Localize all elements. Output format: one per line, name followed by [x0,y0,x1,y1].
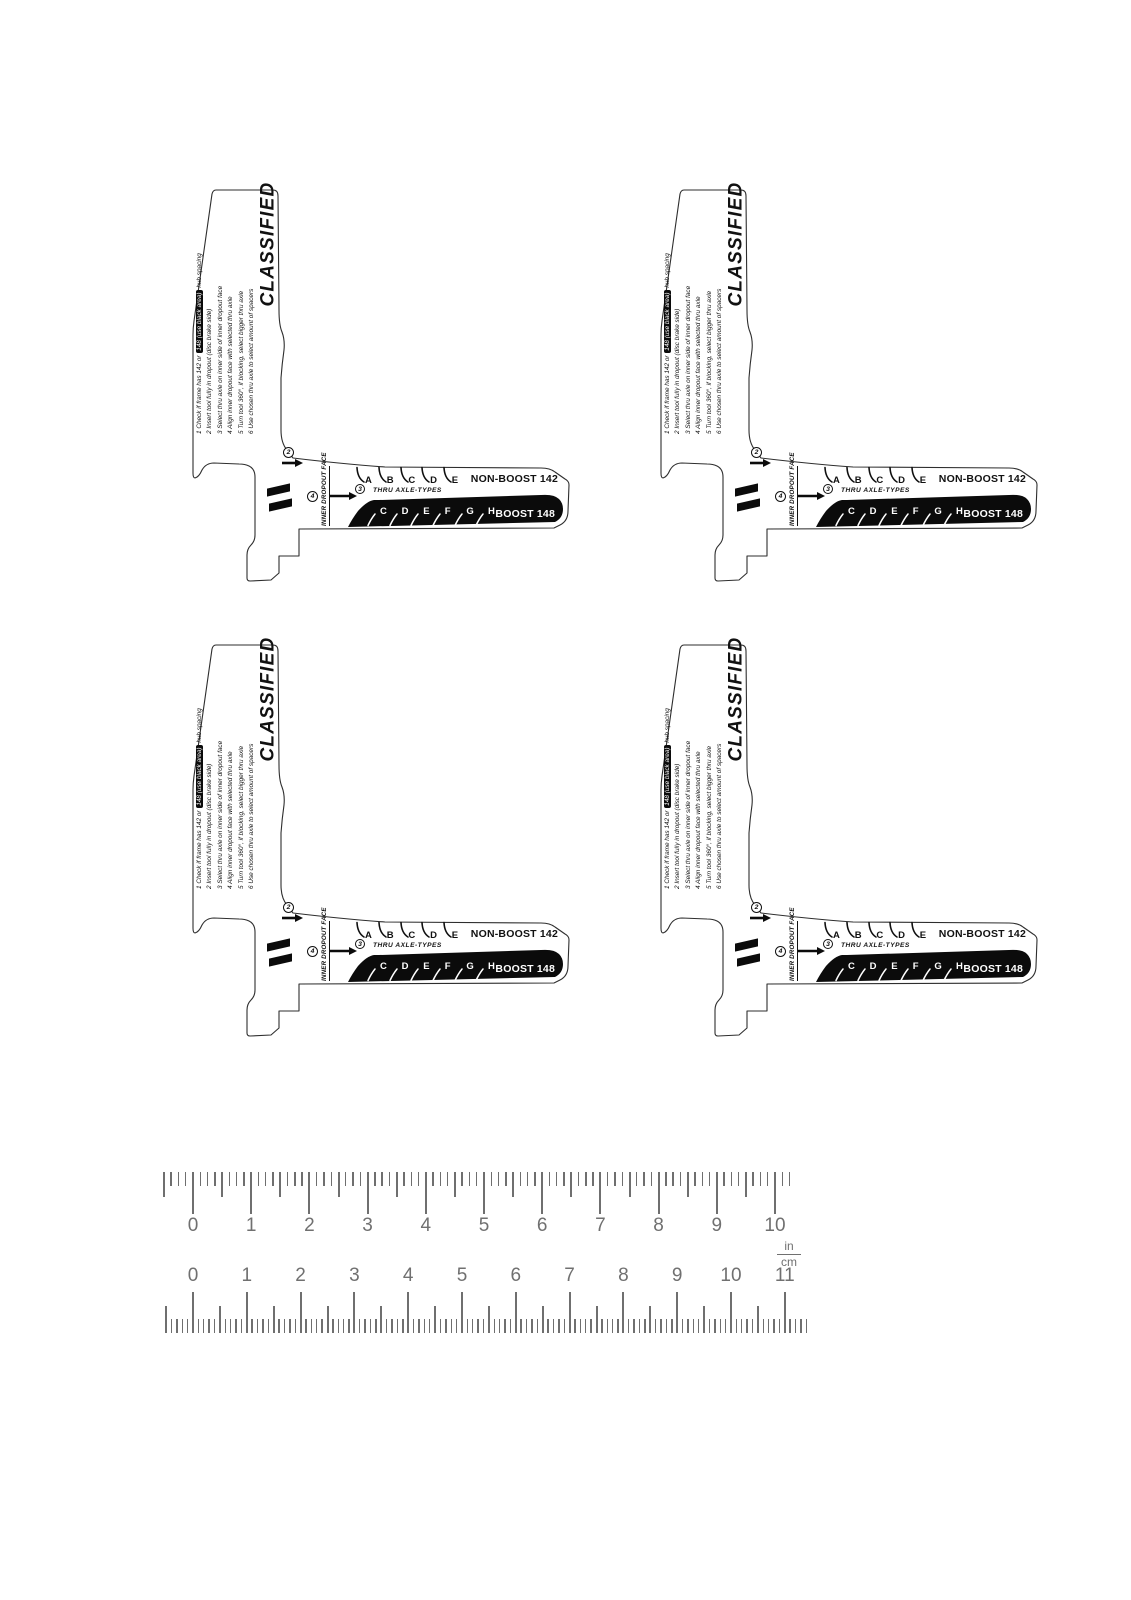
calibration-ruler: 012345678910 in cm 01234567891011 [140,1160,860,1340]
ruler-tick [235,1319,236,1333]
instruction-1-highlight: 148 (use black area) [664,745,671,807]
ruler-tick [289,1319,290,1333]
boost-label: BOOST 148 [902,963,1023,975]
dropout-gauge-tool: CLASSIFIED 1 Check if frame has 142 or 1… [183,637,577,1045]
axle-letter: C [848,962,855,972]
ruler-tick [375,1319,376,1333]
ruler-tick [682,1319,683,1333]
ruler-tick [709,1319,710,1333]
instruction-1-pre: 1 Check if frame has 142 or [664,809,671,889]
step-3-marker: 3 [355,939,365,949]
non-boost-label: NON-BOOST 142 [905,928,1026,940]
ruler-tick [622,1292,624,1333]
ruler-tick [203,1319,204,1333]
ruler-tick [311,1319,312,1333]
ruler-tick [219,1306,221,1333]
axle-letter: C [408,931,415,941]
instruction-line-3: 3 Select thru axle on inner side of inne… [216,717,226,889]
ruler-tick [456,1319,457,1333]
ruler-tick [327,1306,329,1333]
ruler-tick [714,1319,715,1333]
ruler-tick [176,1319,177,1333]
step-4-marker: 4 [775,946,786,957]
ruler-tick [370,1319,371,1333]
axle-letter: B [855,476,862,486]
ruler-tick [407,1292,409,1333]
thru-axle-types-label: THRU AXLE-TYPES [841,487,910,494]
axle-letter: D [870,962,877,972]
instruction-line-1: 1 Check if frame has 142 or 148 (use bla… [663,717,673,889]
ruler-tick [494,1319,495,1333]
axle-letter: E [891,507,897,517]
instruction-line-3: 3 Select thru axle on inner side of inne… [216,262,226,434]
ruler-tick [773,1319,774,1333]
ruler-tick [461,1292,463,1333]
axle-letter: D [430,476,437,486]
ruler-tick [564,1319,565,1333]
ruler-tick [660,1319,661,1333]
ruler-tick [644,1319,645,1333]
ruler-tick [251,1319,252,1333]
brand-wordmark: CLASSIFIED [258,650,281,762]
ruler-tick [596,1306,598,1333]
step-3-marker: 3 [823,939,833,949]
non-boost-label: NON-BOOST 142 [437,928,558,940]
instruction-line-4: 4 Align inner dropout face with selected… [226,262,236,434]
ruler-tick [757,1306,759,1333]
ruler-tick [402,1319,403,1333]
ruler-tick [746,1319,747,1333]
boost-label: BOOST 148 [434,508,555,520]
ruler-tick [278,1319,279,1333]
ruler-tick [693,1319,694,1333]
ruler-tick [703,1306,705,1333]
ruler-tick [698,1319,699,1333]
ruler-tick [305,1319,306,1333]
ruler-tick [424,1319,425,1333]
ruler-tick [418,1319,419,1333]
ruler-tick [192,1292,194,1333]
ruler-tick [321,1319,322,1333]
non-boost-label: NON-BOOST 142 [437,473,558,485]
ruler-tick [741,1319,742,1333]
axle-letter: D [430,931,437,941]
instruction-line-3: 3 Select thru axle on inner side of inne… [684,262,694,434]
axle-letter: C [876,476,883,486]
ruler-tick [601,1319,602,1333]
ruler-tick [795,1319,796,1333]
instruction-line-6: 6 Use chosen thru axle to select amount … [715,717,725,889]
axle-letter: E [423,962,429,972]
ruler-tick [241,1319,242,1333]
tool-copy-1: CLASSIFIED 1 Check if frame has 142 or 1… [183,182,577,590]
ruler-tick [612,1319,613,1333]
non-boost-label: NON-BOOST 142 [905,473,1026,485]
ruler-tick [752,1319,753,1333]
ruler-tick [585,1319,586,1333]
ruler-tick [725,1319,726,1333]
ruler-tick [467,1319,468,1333]
instruction-line-2: 2 Insert tool fully in dropout (disc bra… [205,717,215,889]
ruler-tick [343,1319,344,1333]
ruler-tick [429,1319,430,1333]
ruler-tick [547,1319,548,1333]
ruler-tick [187,1319,188,1333]
ruler-tick [520,1319,521,1333]
ruler-tick [359,1319,360,1333]
axle-letter: C [380,962,387,972]
ruler-tick [165,1306,167,1333]
instruction-1-post: hub spacing [196,253,203,289]
inner-dropout-face-label: INNER DROPOUT FACE [320,921,330,981]
ruler-tick [720,1319,721,1333]
ruler-tick [607,1319,608,1333]
instruction-line-1: 1 Check if frame has 142 or 148 (use bla… [663,262,673,434]
ruler-tick [800,1319,801,1333]
ruler-tick [364,1319,365,1333]
axle-letter: B [387,476,394,486]
ruler-tick [574,1319,575,1333]
ruler-tick [300,1292,302,1333]
instruction-1-highlight: 148 (use black area) [196,745,203,807]
inner-dropout-face-label: INNER DROPOUT FACE [788,466,798,526]
inner-dropout-face-label: INNER DROPOUT FACE [320,466,330,526]
boost-label: BOOST 148 [902,508,1023,520]
ruler-tick [316,1319,317,1333]
thru-axle-types-label: THRU AXLE-TYPES [373,942,442,949]
ruler-tick [451,1319,452,1333]
ruler-tick [198,1319,199,1333]
axle-letter: A [365,476,372,486]
axle-letter: D [402,962,409,972]
ruler-tick [617,1319,618,1333]
instruction-line-2: 2 Insert tool fully in dropout (disc bra… [205,262,215,434]
ruler-tick [353,1292,355,1333]
brand-wordmark: CLASSIFIED [258,195,281,307]
brand-wordmark: CLASSIFIED [726,195,749,307]
ruler-tick [348,1319,349,1333]
ruler-tick [225,1319,226,1333]
ruler-tick [515,1292,517,1333]
ruler-tick [806,1319,807,1333]
instruction-line-6: 6 Use chosen thru axle to select amount … [247,262,257,434]
step-4-marker: 4 [775,491,786,502]
instruction-1-post: hub spacing [664,708,671,744]
tool-copy-4: CLASSIFIED 1 Check if frame has 142 or 1… [651,637,1045,1045]
ruler-tick [569,1292,571,1333]
printable-template-page: CLASSIFIED 1 Check if frame has 142 or 1… [0,0,1131,1600]
ruler-tick [655,1319,656,1333]
ruler-tick [768,1319,769,1333]
step-2-marker: 2 [751,902,762,913]
ruler-tick [671,1319,672,1333]
instruction-line-1: 1 Check if frame has 142 or 148 (use bla… [195,717,205,889]
instruction-1-post: hub spacing [196,708,203,744]
axle-letter: A [833,931,840,941]
axle-letter: A [833,476,840,486]
inner-dropout-face-label: INNER DROPOUT FACE [788,921,798,981]
ruler-tick [284,1319,285,1333]
step-4-marker: 4 [307,491,318,502]
axle-letter: B [387,931,394,941]
instruction-1-highlight: 148 (use black area) [664,290,671,352]
instruction-line-2: 2 Insert tool fully in dropout (disc bra… [673,717,683,889]
axle-letter: E [423,507,429,517]
ruler-tick [639,1319,640,1333]
axle-letter: C [876,931,883,941]
ruler-tick [531,1319,532,1333]
ruler-tick [472,1319,473,1333]
ruler-tick [182,1319,183,1333]
axle-letter: C [848,507,855,517]
ruler-tick [553,1319,554,1333]
ruler-tick [483,1319,484,1333]
axle-letter: C [380,507,387,517]
ruler-tick [763,1319,764,1333]
instruction-line-3: 3 Select thru axle on inner side of inne… [684,717,694,889]
ruler-tick [268,1319,269,1333]
instruction-line-2: 2 Insert tool fully in dropout (disc bra… [673,262,683,434]
instruction-1-pre: 1 Check if frame has 142 or [196,354,203,434]
instruction-line-6: 6 Use chosen thru axle to select amount … [247,717,257,889]
instruction-1-pre: 1 Check if frame has 142 or [664,354,671,434]
ruler-tick [295,1319,296,1333]
ruler-tick [230,1319,231,1333]
ruler-tick [590,1319,591,1333]
ruler-tick [580,1319,581,1333]
ruler-tick [257,1319,258,1333]
instruction-line-5: 5 Turn tool 360°, if blocking, select bi… [705,717,715,889]
ruler-tick [499,1319,500,1333]
thru-axle-types-label: THRU AXLE-TYPES [841,942,910,949]
axle-letter: D [870,507,877,517]
ruler-tick [784,1292,786,1333]
ruler-tick [397,1319,398,1333]
step-4-marker: 4 [307,946,318,957]
ruler-tick [736,1319,737,1333]
step-2-marker: 2 [751,447,762,458]
ruler-tick [779,1319,780,1333]
axle-letter: A [365,931,372,941]
instruction-line-4: 4 Align inner dropout face with selected… [694,262,704,434]
instruction-line-5: 5 Turn tool 360°, if blocking, select bi… [705,262,715,434]
ruler-tick [273,1306,275,1333]
instruction-1-post: hub spacing [664,253,671,289]
axle-letter: D [402,507,409,517]
ruler-tick [208,1319,209,1333]
ruler-tick [413,1319,414,1333]
thru-axle-types-label: THRU AXLE-TYPES [373,487,442,494]
ruler-tick [477,1319,478,1333]
ruler-tick [649,1306,651,1333]
axle-letter: C [408,476,415,486]
ruler-tick [488,1306,490,1333]
ruler-tick [504,1319,505,1333]
instruction-1-highlight: 148 (use black area) [196,290,203,352]
ruler-tick [526,1319,527,1333]
ruler-tick [262,1319,263,1333]
axle-letter: D [898,931,905,941]
ruler-tick [666,1319,667,1333]
ruler-tick [730,1292,732,1333]
ruler-tick [537,1319,538,1333]
axle-letter: D [898,476,905,486]
step-2-marker: 2 [283,902,294,913]
ruler-tick [510,1319,511,1333]
ruler-tick [628,1319,629,1333]
instruction-line-5: 5 Turn tool 360°, if blocking, select bi… [237,717,247,889]
ruler-tick [214,1319,215,1333]
instruction-line-4: 4 Align inner dropout face with selected… [694,717,704,889]
ruler-tick [434,1306,436,1333]
step-3-marker: 3 [355,484,365,494]
axle-letter: E [891,962,897,972]
ruler-tick [380,1306,382,1333]
ruler-tick [171,1319,172,1333]
step-3-marker: 3 [823,484,833,494]
dropout-gauge-tool: CLASSIFIED 1 Check if frame has 142 or 1… [651,182,1045,590]
ruler-tick [338,1319,339,1333]
instruction-1-pre: 1 Check if frame has 142 or [196,809,203,889]
dropout-gauge-tool: CLASSIFIED 1 Check if frame has 142 or 1… [183,182,577,590]
cm-tick-scale [140,1160,860,1340]
ruler-tick [542,1306,544,1333]
ruler-tick [332,1319,333,1333]
ruler-tick [633,1319,634,1333]
ruler-tick [440,1319,441,1333]
step-2-marker: 2 [283,447,294,458]
axle-letter: B [855,931,862,941]
ruler-tick [558,1319,559,1333]
tool-copy-3: CLASSIFIED 1 Check if frame has 142 or 1… [183,637,577,1045]
ruler-tick [391,1319,392,1333]
instruction-line-4: 4 Align inner dropout face with selected… [226,717,236,889]
instruction-line-6: 6 Use chosen thru axle to select amount … [715,262,725,434]
dropout-gauge-tool: CLASSIFIED 1 Check if frame has 142 or 1… [651,637,1045,1045]
boost-label: BOOST 148 [434,963,555,975]
ruler-tick [676,1292,678,1333]
instruction-line-1: 1 Check if frame has 142 or 148 (use bla… [195,262,205,434]
ruler-tick [246,1292,248,1333]
ruler-tick [386,1319,387,1333]
brand-wordmark: CLASSIFIED [726,650,749,762]
tool-copy-2: CLASSIFIED 1 Check if frame has 142 or 1… [651,182,1045,590]
ruler-tick [445,1319,446,1333]
ruler-tick [789,1319,790,1333]
ruler-tick [687,1319,688,1333]
instruction-line-5: 5 Turn tool 360°, if blocking, select bi… [237,262,247,434]
